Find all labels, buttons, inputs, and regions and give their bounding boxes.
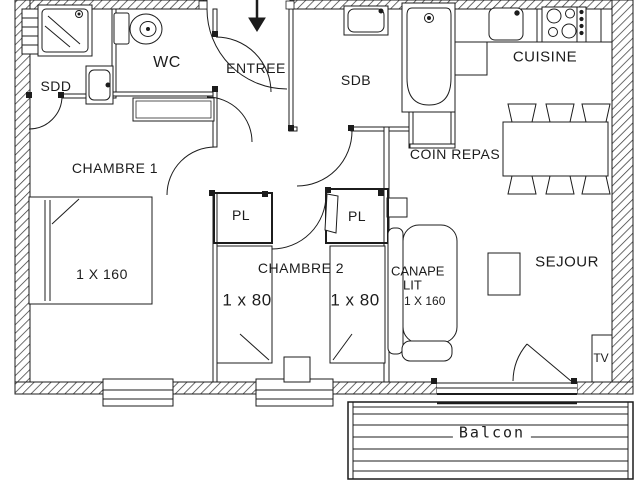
balcony-door bbox=[437, 381, 577, 394]
entrance-door-arc bbox=[207, 9, 287, 89]
shower-icon bbox=[38, 5, 92, 56]
room-label-sdb: SDB bbox=[341, 73, 371, 87]
balcony-door-arc bbox=[513, 344, 527, 381]
door-arcs bbox=[29, 9, 571, 381]
coffee-table-icon bbox=[488, 253, 520, 295]
door-jambs bbox=[26, 1, 577, 384]
bed-size-label-left: 1 x 80 bbox=[222, 292, 271, 309]
room-label-coin-repas: COIN REPAS bbox=[410, 147, 500, 161]
sofa-bed-icon bbox=[388, 225, 457, 361]
sofa-label-line3: 1 X 160 bbox=[404, 295, 445, 307]
window-chambre1 bbox=[103, 379, 173, 406]
sdb-door-arc bbox=[297, 131, 352, 186]
room-label-pl-right: PL bbox=[348, 209, 366, 223]
balcony-door-leaf bbox=[527, 344, 571, 381]
room-label-chambre2: CHAMBRE 2 bbox=[258, 261, 344, 275]
nightstand-icon bbox=[284, 357, 310, 382]
sofa-label-line2: LIT bbox=[403, 279, 422, 292]
room-label-chambre1: CHAMBRE 1 bbox=[72, 161, 158, 175]
bathtub-icon bbox=[402, 3, 455, 112]
room-label-cuisine: CUISINE bbox=[513, 50, 577, 65]
room-label-balcon: Balcon bbox=[453, 426, 531, 441]
sofa-label-line1: CANAPE bbox=[391, 265, 444, 278]
chambre2-door-arc bbox=[272, 195, 326, 249]
bed-size-label-chambre1: 1 X 160 bbox=[76, 267, 128, 281]
stove-icon bbox=[542, 7, 586, 42]
room-label-wc: WC bbox=[153, 55, 181, 71]
entrance-arrow-icon bbox=[249, 0, 265, 31]
room-label-pl-left: PL bbox=[232, 208, 250, 222]
tv-label: TV bbox=[593, 352, 608, 364]
room-label-sdd: SDD bbox=[40, 79, 71, 93]
chambre1-door-arc bbox=[167, 147, 215, 195]
bed-size-label-right: 1 x 80 bbox=[330, 292, 379, 309]
kitchen-sink-icon bbox=[489, 8, 523, 40]
toilet-icon bbox=[114, 13, 162, 44]
radiator-icon bbox=[22, 9, 38, 54]
room-label-sejour: SEJOUR bbox=[535, 255, 599, 270]
washbasin-sdb-icon bbox=[344, 6, 388, 35]
closet-right-door-leaf bbox=[325, 194, 338, 233]
floor-plan: SDD WC ENTREE SDB CUISINE COIN REPAS CHA… bbox=[0, 0, 640, 480]
window-chambre2 bbox=[256, 379, 333, 406]
room-label-entree: ENTREE bbox=[226, 61, 286, 75]
washbasin-sdd-icon bbox=[86, 66, 113, 104]
dining-table-icon bbox=[503, 104, 610, 194]
sdd-door-arc bbox=[29, 96, 62, 129]
wardrobe-icon bbox=[133, 98, 214, 121]
double-bed-icon bbox=[29, 197, 152, 304]
floor-plan-drawing bbox=[0, 0, 640, 480]
